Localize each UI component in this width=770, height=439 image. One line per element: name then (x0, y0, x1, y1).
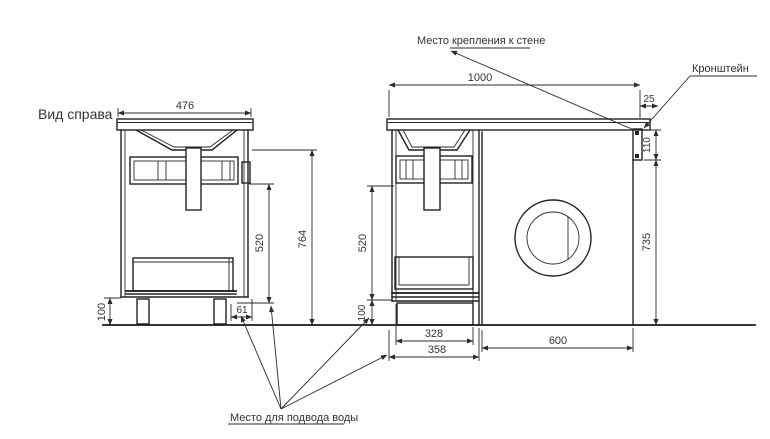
bracket-annotation: Кронштейн (644, 63, 757, 128)
dim-520-front: 520 (357, 186, 394, 300)
side-rail-assembly (130, 157, 238, 184)
wall-mount-annotation: Место крепления к стене (417, 35, 634, 130)
side-drain-pipe (186, 148, 201, 210)
dim-label-25: 25 (643, 94, 655, 105)
water-leader-3 (281, 318, 369, 409)
side-countertop (117, 119, 253, 130)
water-leader-1 (241, 316, 281, 409)
dim-label-100-side: 100 (96, 303, 108, 321)
dim-476: 476 (118, 100, 251, 117)
dim-label-61: 61 (236, 305, 248, 316)
front-drain-pipe (424, 148, 440, 210)
dim-600: 600 (482, 328, 633, 352)
side-basin (136, 130, 237, 150)
side-handle (242, 162, 250, 183)
dim-label-600: 600 (549, 335, 567, 347)
machine-door-outer (515, 200, 591, 276)
vanity-washing-machine-drawing: 476 100 61 520 764 (0, 0, 770, 439)
dim-label-735: 735 (641, 233, 653, 251)
front-lower-drawer (392, 257, 478, 297)
washing-machine (482, 132, 633, 325)
dim-label-1000: 1000 (468, 72, 492, 84)
machine-door-inner (527, 212, 579, 264)
dim-110: 110 (642, 130, 661, 160)
dim-label-328: 328 (425, 328, 443, 340)
bracket-label: Кронштейн (692, 63, 749, 75)
front-countertop (387, 119, 650, 130)
wall-mount-label: Место крепления к стене (417, 35, 545, 47)
side-view-drawing: 476 100 61 520 764 (96, 100, 317, 325)
technical-drawing-page: 476 100 61 520 764 (0, 0, 770, 439)
dim-25: 25 (640, 94, 658, 118)
dim-label-764: 764 (297, 230, 309, 248)
front-view-drawing: 1000 25 110 735 520 100 (103, 72, 755, 361)
dim-label-100-front: 100 (357, 304, 368, 321)
dim-label-358: 358 (428, 344, 446, 356)
water-supply-label: Место для подвода воды (230, 412, 358, 424)
front-basin (398, 130, 470, 150)
dim-label-520-side: 520 (254, 234, 266, 252)
wall-bracket (633, 129, 642, 160)
dim-label-476: 476 (176, 100, 194, 112)
dim-100-front: 100 (357, 300, 372, 325)
dim-735: 735 (641, 160, 656, 325)
front-plinth (392, 301, 478, 325)
water-leader-2 (271, 306, 281, 409)
view-title: Вид справа (38, 106, 113, 122)
dim-520-side: 520 (237, 184, 274, 303)
dim-label-110: 110 (642, 137, 653, 153)
wall-mount-leader (451, 51, 634, 130)
water-leader-4 (281, 355, 387, 409)
dim-100-side: 100 (96, 298, 121, 325)
dim-label-520-front: 520 (357, 234, 369, 252)
side-plinth-legs (121, 297, 248, 324)
water-supply-annotation: Место для подвода воды (228, 306, 387, 424)
side-lower-drawer (126, 258, 236, 294)
